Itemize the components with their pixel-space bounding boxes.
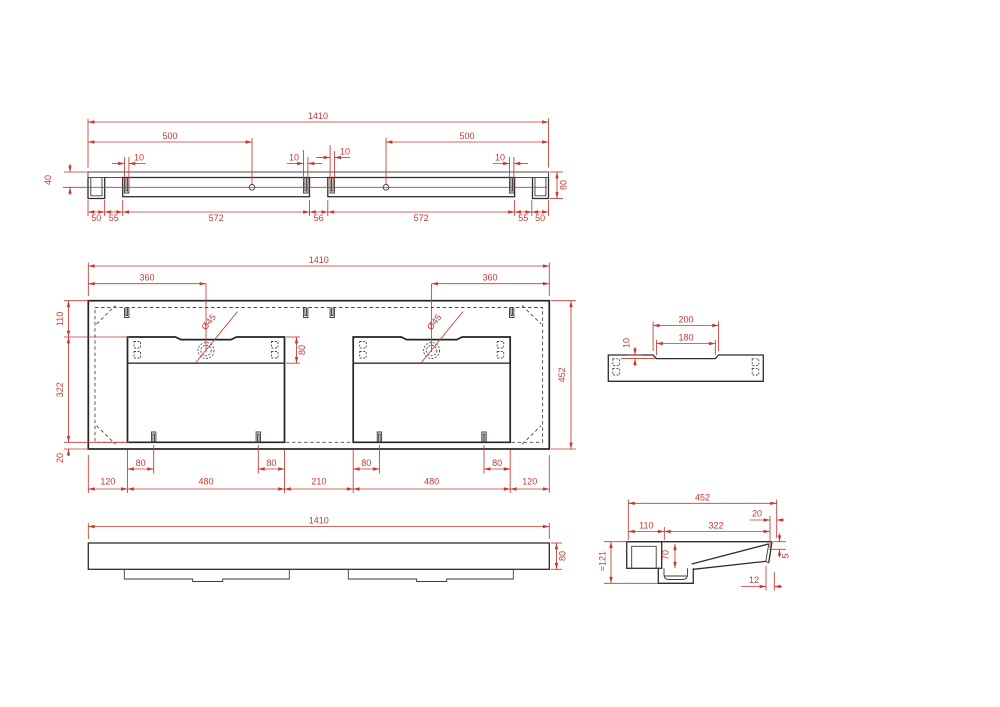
technical-drawing-canvas: 1410 500 500 40 80 10 10 10 [0,0,1000,707]
dim-drain-dia-left: Ø45 [199,312,217,332]
dim-front-slot-2: 10 [289,153,299,163]
dim-front-hole-drop: 40 [43,175,53,185]
front-elevation-view [88,172,549,199]
dim-plan-b3: 210 [311,477,326,487]
dim-front-slot-1: 10 [134,153,144,163]
dim-front-b4: 56 [314,213,324,223]
plan-outline [88,301,549,449]
dim-plan-s4: 80 [492,458,502,468]
side-profile-view: 200 180 10 [608,315,763,382]
drawing-sheet: 1410 500 500 40 80 10 10 10 [0,0,1000,707]
dim-profile-outer: 200 [678,315,693,325]
bottom-slab [88,543,549,569]
dim-section-bowl-depth: 70 [661,550,671,560]
dim-plan-side-2: 322 [55,382,65,397]
dim-bottom-height: 80 [558,551,568,561]
dim-front-slot-4: 10 [495,153,505,163]
front-mount-slots [125,178,514,194]
plan-top-slots [125,308,514,318]
plan-hidden-edge [95,308,543,443]
front-bottom-dims: 50 55 572 56 572 55 50 [88,200,549,223]
dim-section-rim-thickness: 5 [781,553,791,558]
dim-plan-overall: 1410 [309,255,329,265]
dim-front-slot-3: 10 [340,147,350,157]
dim-front-b7: 50 [535,213,545,223]
dim-plan-b5: 120 [522,477,537,487]
dim-plan-side-1: 110 [55,312,65,326]
basin-fixing-holes [134,342,504,359]
dim-profile-inner: 180 [678,333,693,343]
dim-section-height: ≈121 [598,551,608,571]
plan-dimensions: 1410 360 360 Ø45 Ø45 80 110 322 20 452 [55,255,576,493]
dim-front-overall: 1410 [308,111,328,121]
dim-plan-b2: 480 [198,477,213,487]
dim-bottom-overall: 1410 [309,516,329,526]
dim-plan-deck: 80 [297,345,307,355]
section-bowl-slope [692,544,769,564]
dim-front-b1: 50 [91,213,101,223]
dim-front-b2: 55 [109,213,119,223]
dim-front-b3: 572 [209,213,224,223]
dim-section-back: 110 [639,521,653,531]
dim-plan-s1: 80 [136,458,146,468]
dim-front-hole-right: 500 [459,131,474,141]
front-slot-dims: 10 10 10 10 [112,145,528,181]
basin-left [128,337,285,442]
dim-plan-drain-right: 360 [482,273,497,283]
dim-front-height: 80 [559,180,569,190]
front-dimensions: 1410 500 500 40 80 10 10 10 [43,111,569,223]
dim-drain-dia-right: Ø45 [425,312,443,332]
cross-section-view: 452 20 110 322 ≈121 70 5 12 [598,492,791,590]
dim-section-undercut: 12 [749,575,759,585]
dim-section-bowl-width: 322 [708,521,723,531]
dim-section-rim-front: 20 [752,509,762,519]
dim-plan-drain-left: 360 [139,273,154,283]
dim-section-depth: 452 [695,492,710,502]
dim-front-hole-left: 500 [162,131,177,141]
dim-plan-side-3: 20 [55,453,65,463]
dim-profile-depth: 10 [622,338,632,348]
dim-front-b5: 572 [414,213,429,223]
dim-plan-b4: 480 [424,477,439,487]
dim-front-b6: 55 [518,213,528,223]
basin-right [353,337,510,442]
plan-bottom-slots [152,432,487,442]
dim-plan-s2: 80 [266,458,276,468]
dim-plan-b1: 120 [100,477,115,487]
bottom-bowl-left [124,569,289,581]
countertop-front-face [88,172,549,178]
bottom-bowl-right [348,569,513,581]
dim-plan-s3: 80 [361,458,371,468]
dim-plan-depth: 452 [557,367,567,382]
bottom-elevation-view: 1410 80 [88,516,567,582]
plan-view [88,301,549,449]
